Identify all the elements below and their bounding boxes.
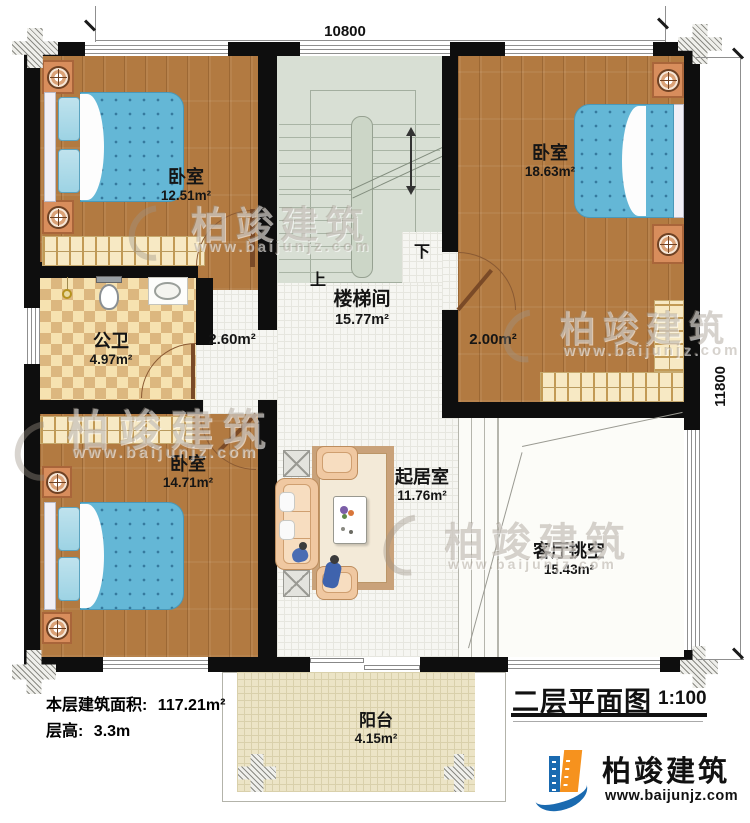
brand-url: www.baijunjz.com — [605, 788, 738, 804]
window-left-bathroom — [24, 308, 40, 364]
arrow-down-icon — [406, 186, 416, 195]
flower-decor-icon — [340, 506, 348, 514]
stair-down-label: 下 — [400, 238, 444, 262]
balcony-label: 阳台 4.15m² — [341, 712, 411, 747]
table-item-icon — [349, 530, 353, 534]
pillow — [58, 507, 80, 551]
sofa-pillow — [279, 492, 295, 512]
floor-height-value: 3.3m — [94, 723, 130, 740]
room-area: 15.43m² — [529, 563, 609, 578]
dimension-tick-icon — [732, 647, 744, 659]
room-name: 阳台 — [341, 712, 411, 730]
room-area: 11.76m² — [387, 489, 457, 504]
table-item-icon — [341, 527, 345, 531]
wall-stair-bedroomtr — [442, 56, 458, 252]
room-name: 卧室 — [151, 168, 221, 187]
wardrobe — [654, 300, 684, 372]
door-leaf — [191, 344, 195, 399]
nightstand — [42, 612, 72, 644]
person-head-icon — [330, 555, 339, 564]
brand-name: 柏竣建筑 — [602, 748, 730, 790]
floor-area-note: 本层建筑面积: 117.21m² — [46, 691, 225, 715]
flower-decor-icon — [348, 510, 354, 516]
room-area: 12.51m² — [151, 189, 221, 204]
window-top-stair — [300, 42, 450, 56]
coffee-table — [333, 496, 367, 544]
bed-headboard — [44, 502, 56, 610]
doorway-threshold-bl — [203, 400, 258, 414]
bedroom-tl-label: 卧室 12.51m² — [151, 168, 221, 204]
floor-plan: 下 上 阳台 4.15m² — [0, 0, 750, 823]
hall-area-left: 2.60m² — [197, 332, 267, 348]
lamp-icon — [47, 66, 70, 89]
sink-icon — [154, 282, 181, 300]
wardrobe — [42, 236, 205, 266]
room-area: 4.15m² — [341, 732, 411, 747]
title-underline-thin — [513, 721, 703, 722]
floor-height-note: 层高: 3.3m — [46, 717, 130, 741]
wall-bedroomtr-left-lower — [442, 310, 458, 402]
hall-area-right: 2.00m² — [458, 332, 528, 348]
toilet-tank-icon — [96, 276, 122, 283]
area-value: 2.00m² — [458, 332, 528, 348]
balcony-slider-panel — [364, 665, 420, 670]
dimension-top-value: 10800 — [285, 23, 405, 40]
void-label: 客厅挑空 15.43m² — [529, 542, 609, 578]
area-value: 2.60m² — [197, 332, 267, 348]
toilet-icon — [99, 284, 119, 310]
living-label: 起居室 11.76m² — [387, 468, 457, 504]
stair-direction-arrow — [410, 136, 412, 186]
room-name: 起居室 — [387, 468, 457, 487]
room-area: 15.77m² — [317, 313, 407, 329]
armchair-cushion — [322, 452, 352, 473]
bathroom-label: 公卫 4.97m² — [76, 332, 146, 368]
flower-decor-icon — [342, 514, 347, 519]
nightstand — [42, 200, 74, 234]
floor-area-label: 本层建筑面积: — [46, 697, 147, 714]
room-area: 14.71m² — [153, 476, 223, 491]
bedroom-tr-label: 卧室 18.63m² — [515, 144, 585, 180]
lamp-icon — [46, 471, 69, 494]
title-block: 二层平面图 1:100 — [512, 680, 712, 716]
nightstand — [42, 466, 72, 498]
wardrobe — [540, 372, 684, 402]
brand-logo: 柏竣建筑 www.baijunjz.com — [532, 748, 742, 814]
bed-headboard — [44, 92, 56, 202]
nightstand — [652, 224, 684, 264]
bedroom-bl-label: 卧室 14.71m² — [153, 455, 223, 491]
pull-light-icon — [62, 289, 72, 299]
room-name: 卧室 — [515, 144, 585, 163]
wall-bedroombl-top — [40, 400, 203, 414]
wardrobe — [40, 416, 193, 444]
dimension-tick-icon — [657, 17, 669, 29]
dimension-extension — [95, 6, 96, 42]
room-name: 公卫 — [76, 332, 146, 351]
stairwell-label: 楼梯间 15.77m² — [317, 290, 407, 328]
lamp-icon — [657, 233, 680, 256]
room-name: 卧室 — [153, 455, 223, 474]
doorway-threshold-bath — [196, 345, 213, 400]
window-top-right — [505, 42, 653, 56]
room-name: 楼梯间 — [317, 290, 407, 311]
window-right-void — [684, 430, 700, 650]
arrow-up-icon — [406, 127, 416, 136]
window-bottom-void — [508, 657, 660, 672]
floor-area-value: 117.21m² — [158, 697, 226, 714]
stair-up-label: 上 — [296, 266, 340, 290]
dimension-line-top — [95, 40, 666, 41]
sofa-pillow — [279, 520, 295, 540]
side-table — [283, 450, 310, 477]
title-underline — [511, 713, 707, 717]
room-area: 4.97m² — [76, 353, 146, 368]
floor-height-label: 层高: — [46, 723, 83, 740]
dimension-line-right — [740, 58, 741, 660]
side-table — [283, 570, 310, 597]
drawing-scale: 1:100 — [658, 688, 707, 710]
pillow — [58, 557, 80, 601]
lamp-icon — [46, 617, 69, 640]
pillow — [58, 149, 80, 193]
dimension-right-value: 11800 — [712, 366, 729, 407]
door-leaf — [250, 209, 255, 267]
window-top-left — [85, 42, 228, 56]
void-railing — [458, 418, 499, 657]
window-bottom-bedroom — [103, 657, 208, 672]
dimension-extension — [696, 57, 744, 58]
nightstand — [652, 62, 684, 98]
room-name: 客厅挑空 — [529, 542, 609, 561]
nightstand — [42, 60, 74, 94]
dimension-extension — [696, 659, 744, 660]
lamp-icon — [657, 69, 680, 92]
room-area: 18.63m² — [515, 165, 585, 180]
wall-bedroomtl-stair — [258, 56, 277, 330]
pillow — [58, 97, 80, 141]
person-head-icon — [299, 542, 307, 550]
doorway-threshold-tr — [442, 252, 458, 310]
lamp-icon — [47, 206, 70, 229]
logo-building-icon — [549, 756, 560, 792]
balcony-slider-panel — [310, 658, 364, 663]
